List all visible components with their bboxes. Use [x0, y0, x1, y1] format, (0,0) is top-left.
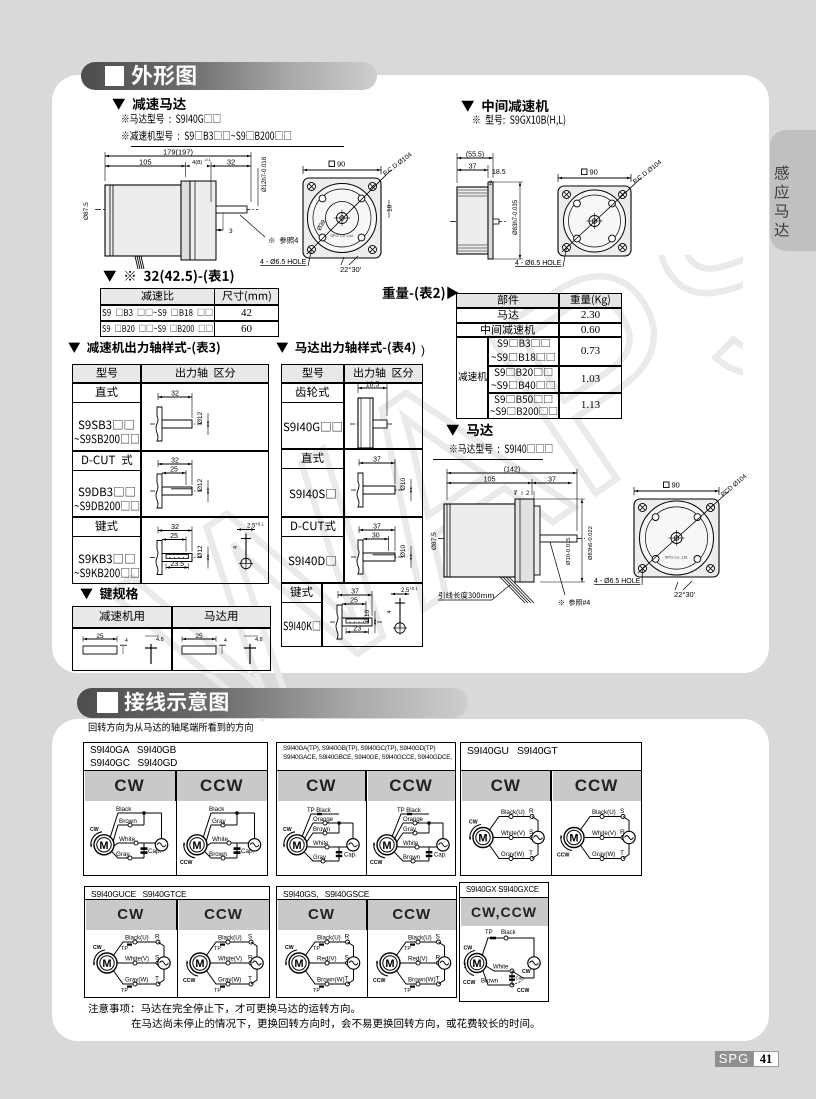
svg-text:Gray: Gray [403, 827, 416, 833]
svg-text:T: T [435, 976, 439, 983]
svg-text:90: 90 [337, 160, 345, 169]
svg-text:32: 32 [171, 391, 179, 398]
svg-text:Ø12h7-0.018: Ø12h7-0.018 [262, 156, 268, 192]
svg-text:Ø10-0.015: Ø10-0.015 [566, 538, 572, 565]
svg-text:CW: CW [283, 827, 292, 833]
svg-text:Ø10: Ø10 [400, 477, 407, 490]
svg-text:18.5: 18.5 [492, 169, 506, 176]
svg-text:Brown: Brown [119, 818, 137, 825]
svg-text:S: S [435, 934, 440, 941]
svg-text:Gray(W): Gray(W) [592, 851, 615, 858]
svg-text:R: R [345, 934, 350, 941]
svg-text:CW: CW [90, 827, 99, 833]
svg-text:18.5: 18.5 [366, 382, 380, 389]
svg-text:S: S [248, 934, 253, 941]
svg-text:2.5+0.1: 2.5+0.1 [401, 586, 418, 594]
svg-text:Black(U): Black(U) [125, 935, 149, 942]
svg-text:Cap.: Cap. [344, 853, 357, 859]
svg-text:25: 25 [195, 633, 203, 640]
svg-text:Gray(W): Gray(W) [125, 977, 148, 984]
svg-text:32: 32 [171, 524, 179, 531]
svg-text:TP: TP [485, 930, 493, 936]
svg-text:TP: TP [313, 988, 320, 994]
svg-text:30: 30 [372, 533, 380, 540]
svg-text:CCW: CCW [557, 853, 569, 859]
svg-text:CW: CW [285, 945, 294, 951]
svg-text:P.C.D.Ø104: P.C.D.Ø104 [632, 159, 664, 186]
svg-text:32: 32 [171, 458, 179, 465]
svg-text:Ø10: Ø10 [364, 609, 371, 622]
svg-text:25: 25 [96, 633, 104, 640]
svg-text:2.5+0.1: 2.5+0.1 [247, 522, 264, 530]
svg-text:R: R [155, 934, 160, 941]
svg-text:Black: Black [116, 806, 132, 813]
svg-text:M: M [195, 958, 204, 970]
svg-text:M: M [294, 958, 303, 970]
svg-text:CCW: CCW [180, 860, 192, 866]
svg-text:M: M [192, 840, 201, 852]
svg-text:CW: CW [522, 969, 531, 975]
svg-text:32: 32 [227, 158, 235, 167]
svg-text:M: M [478, 833, 487, 845]
svg-text:37: 37 [548, 475, 556, 484]
svg-text:Black(U): Black(U) [592, 809, 616, 816]
svg-text:37: 37 [373, 524, 381, 531]
svg-text:R: R [529, 808, 534, 815]
svg-text:23: 23 [353, 626, 361, 633]
svg-text:Brown(W): Brown(W) [408, 977, 436, 984]
svg-text:CW: CW [464, 946, 473, 952]
svg-text:Black(U): Black(U) [501, 809, 525, 816]
svg-text:Ø87.5: Ø87.5 [83, 202, 90, 220]
svg-text:TP: TP [313, 946, 320, 952]
svg-text:Gray: Gray [313, 855, 326, 861]
svg-text:105: 105 [139, 158, 152, 167]
svg-text:Gray(W): Gray(W) [218, 977, 241, 984]
svg-text:90: 90 [672, 481, 680, 490]
svg-text:SPG Co.,Ltd.: SPG Co.,Ltd. [665, 554, 689, 559]
svg-text:CW: CW [469, 820, 478, 826]
svg-text:TP: TP [121, 988, 128, 994]
svg-text:White: White [493, 965, 509, 971]
svg-text:Ø12: Ø12 [197, 478, 204, 491]
svg-text:Cap.: Cap. [434, 853, 447, 859]
svg-text:CW: CW [93, 945, 102, 951]
svg-text:37: 37 [469, 164, 477, 171]
svg-text:M: M [382, 840, 391, 852]
svg-text:M: M [472, 958, 481, 970]
svg-text:22°30': 22°30' [340, 265, 362, 274]
svg-text:Red(V): Red(V) [408, 956, 428, 963]
svg-text:T: T [620, 850, 624, 857]
svg-text:23.5: 23.5 [170, 561, 184, 568]
svg-text:TP: TP [214, 946, 221, 952]
svg-text:M: M [99, 840, 108, 852]
svg-text:25: 25 [350, 598, 358, 605]
svg-text:TP: TP [404, 988, 411, 994]
svg-text:CCW: CCW [183, 978, 195, 984]
svg-text:2: 2 [526, 491, 530, 497]
svg-text:Black: Black [209, 806, 225, 813]
svg-text:4 - Ø6.5 HOLE: 4 - Ø6.5 HOLE [260, 259, 307, 266]
svg-text:4 - Ø6.5 HOLE: 4 - Ø6.5 HOLE [515, 260, 562, 267]
svg-text:Black(U): Black(U) [317, 935, 341, 942]
svg-text:TP: TP [214, 988, 221, 994]
svg-text:37: 37 [351, 589, 359, 596]
svg-text:SPG Co.,Ltd.: SPG Co.,Ltd. [330, 233, 354, 238]
svg-text:(142): (142) [504, 467, 520, 474]
svg-text:CCW: CCW [517, 988, 529, 994]
svg-text:Gray: Gray [116, 851, 130, 858]
svg-text:M: M [385, 958, 394, 970]
svg-text:TP Black: TP Black [397, 808, 422, 814]
svg-text:M: M [569, 833, 578, 845]
svg-text:Black(U): Black(U) [408, 935, 432, 942]
svg-text:T: T [155, 976, 159, 983]
svg-text:4: 4 [233, 546, 239, 549]
svg-text:S: S [620, 808, 625, 815]
svg-text:White: White [313, 841, 329, 847]
svg-text:TP: TP [121, 946, 128, 952]
svg-text:Brown: Brown [481, 979, 498, 985]
svg-text:Brown: Brown [313, 827, 330, 833]
svg-text:Black(U): Black(U) [218, 935, 242, 942]
svg-text:TP: TP [404, 946, 411, 952]
svg-text:Gray(W): Gray(W) [501, 851, 524, 858]
svg-text:T: T [529, 850, 533, 857]
svg-text:4: 4 [224, 638, 227, 644]
svg-text:Ø87.5: Ø87.5 [431, 532, 438, 550]
svg-text:18: 18 [387, 204, 394, 212]
svg-text:TP Black: TP Black [307, 808, 332, 814]
svg-text:-0.1: -0.1 [204, 157, 212, 162]
svg-text:Red(V): Red(V) [317, 956, 337, 963]
svg-text:M: M [102, 958, 111, 970]
svg-text:7: 7 [514, 491, 518, 497]
svg-text:T: T [248, 976, 252, 983]
svg-text:22°30': 22°30' [674, 590, 696, 599]
svg-text:Ø10: Ø10 [400, 544, 407, 557]
svg-text:CCW: CCW [373, 978, 385, 984]
svg-text:105: 105 [484, 475, 496, 484]
svg-text:CCW: CCW [463, 980, 475, 986]
svg-text:25: 25 [170, 533, 178, 540]
svg-text:4(8): 4(8) [192, 160, 202, 166]
svg-text:White(V): White(V) [501, 830, 525, 837]
svg-text:White: White [403, 841, 419, 847]
svg-text:Brown: Brown [403, 855, 420, 861]
svg-text:White(V): White(V) [592, 830, 616, 837]
svg-text:90: 90 [590, 168, 598, 177]
svg-text:4: 4 [125, 638, 128, 644]
svg-text:179(197): 179(197) [163, 148, 194, 157]
svg-text:4: 4 [387, 610, 393, 613]
svg-text:25: 25 [170, 467, 178, 474]
svg-text:4 - Ø6.5 HOLE: 4 - Ø6.5 HOLE [594, 578, 641, 585]
svg-text:Ø83h7-0.035: Ø83h7-0.035 [513, 199, 519, 235]
svg-text:Brown: Brown [209, 851, 227, 858]
svg-text:CCW: CCW [370, 860, 382, 866]
svg-text:3: 3 [229, 228, 233, 235]
svg-text:M: M [292, 840, 301, 852]
svg-text:37: 37 [373, 457, 381, 464]
svg-text:White: White [119, 836, 136, 843]
svg-text:Black: Black [501, 930, 517, 936]
svg-text:PCD Ø104: PCD Ø104 [720, 473, 749, 499]
svg-text:Orange: Orange [313, 817, 334, 823]
svg-text:White(V): White(V) [218, 956, 242, 963]
svg-text:4.8: 4.8 [156, 637, 164, 643]
svg-text:Ø12: Ø12 [197, 545, 204, 558]
svg-text:White(V): White(V) [125, 956, 149, 963]
svg-text:T: T [345, 976, 349, 983]
svg-text:Brown(W): Brown(W) [317, 977, 345, 984]
svg-text:(55.5): (55.5) [466, 152, 484, 159]
svg-text:White: White [212, 836, 229, 843]
svg-text:Ø12: Ø12 [197, 411, 204, 424]
svg-text:Gray: Gray [212, 818, 226, 825]
svg-text:4.8: 4.8 [255, 637, 263, 643]
svg-text:Orange: Orange [403, 817, 424, 823]
